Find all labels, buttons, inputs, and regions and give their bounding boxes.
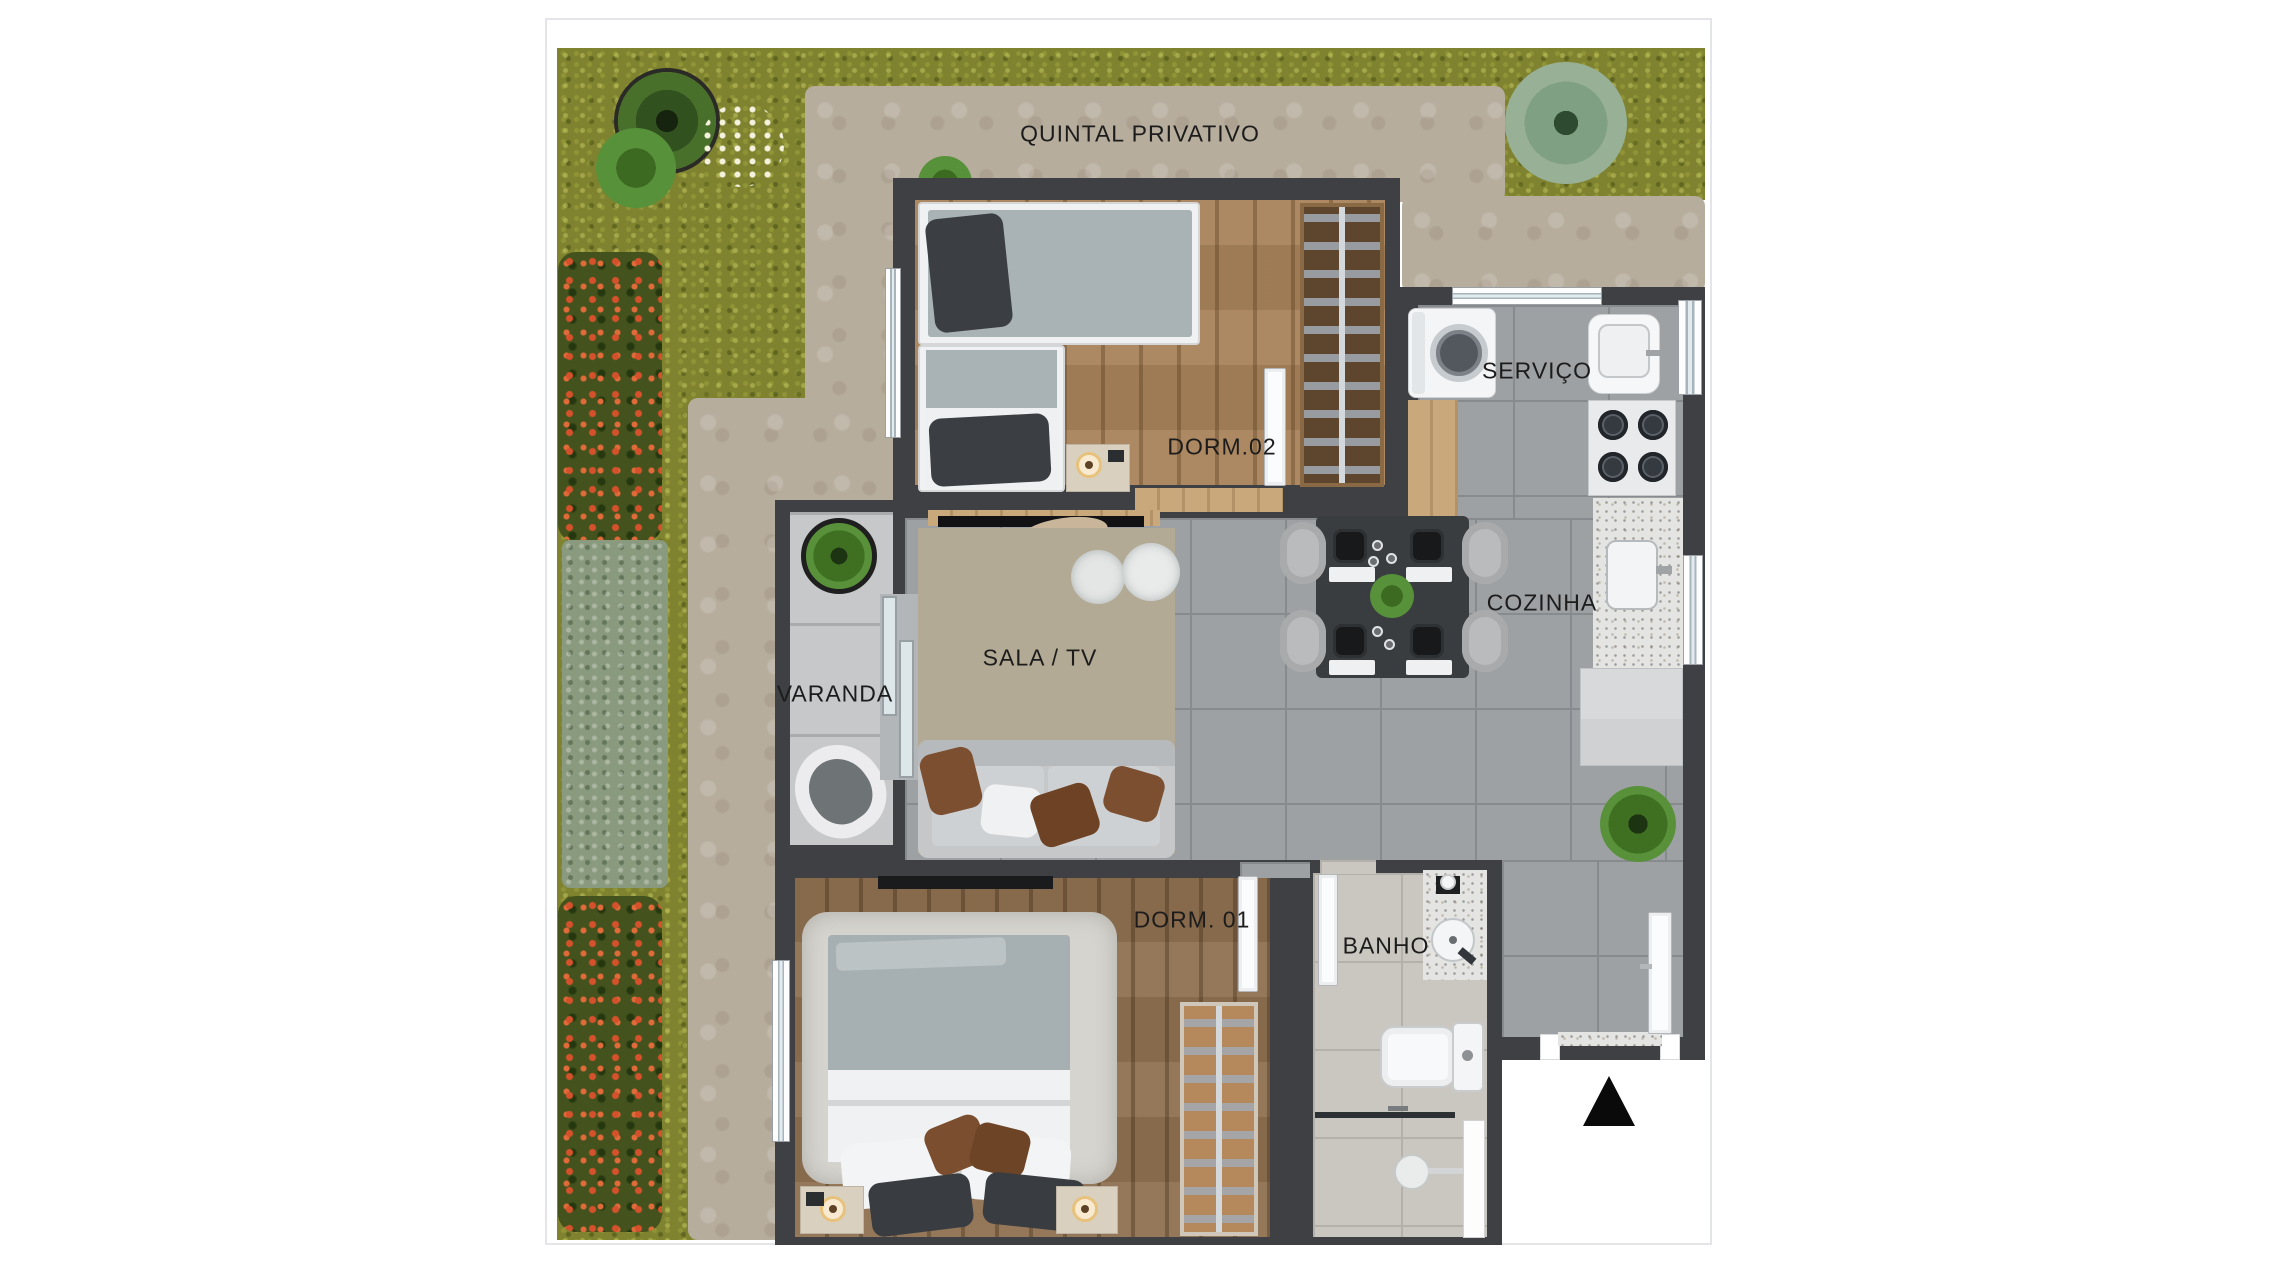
table-lamp-icon [1076, 452, 1102, 478]
dining-chair [1280, 522, 1326, 584]
washer-drum-icon [1430, 324, 1488, 382]
room-label-dorm02: DORM.02 [1167, 434, 1276, 461]
kitchen-counter-wood [1408, 400, 1458, 518]
dorm01-door [1238, 876, 1258, 992]
glass-icon [1386, 553, 1397, 564]
flower-bed-upper [558, 252, 662, 542]
floor-plan: QUINTAL PRIVATIVO DORM.02 [0, 0, 2280, 1283]
light-switch-icon [806, 1192, 824, 1206]
shower-glass-partition [1315, 1112, 1455, 1118]
yard-label: QUINTAL PRIVATIVO [1020, 121, 1260, 148]
room-label-dorm01: DORM. 01 [1134, 907, 1251, 934]
stone-path-top-right [1402, 196, 1705, 293]
duvet-fold [836, 937, 1007, 971]
entry-frame-stub [1540, 1034, 1560, 1060]
entry-triangle-marker [1583, 1076, 1635, 1126]
entry-threshold [1558, 1032, 1662, 1046]
kitchen-faucet-icon [1656, 566, 1672, 574]
white-flower-bush-icon [700, 103, 784, 187]
laundry-faucet-icon [1646, 350, 1660, 356]
varanda-plant-icon [801, 518, 877, 594]
burner-icon [1598, 410, 1628, 440]
burner-icon [1638, 452, 1668, 482]
entry-frame-stub [1660, 1034, 1680, 1060]
dorm02-window [885, 268, 901, 438]
banho-door-threshold [1320, 860, 1376, 874]
glass-icon [1372, 626, 1383, 637]
kitchen-floor-plant-icon [1600, 786, 1676, 862]
placemat-icon [1329, 660, 1375, 675]
dorm02-door [1264, 368, 1286, 486]
plate-icon [1333, 529, 1367, 563]
fridge [1580, 668, 1683, 766]
plate-icon [1410, 529, 1444, 563]
plate-icon [1410, 624, 1444, 658]
vanity-cup-icon [1440, 874, 1456, 890]
dining-chair [1462, 610, 1508, 672]
sage-tree-icon [1505, 62, 1627, 184]
banho-window [1463, 1120, 1485, 1238]
room-label-cozinha: COZINHA [1487, 590, 1598, 617]
glass-icon [1368, 556, 1379, 567]
kitchen-sink [1606, 540, 1658, 610]
laundry-sink-basin [1598, 324, 1650, 378]
dining-chair [1462, 522, 1508, 584]
wardrobe-open-dorm01 [1180, 1002, 1258, 1236]
pouf [1122, 543, 1180, 601]
room-label-servico: SERVIÇO [1482, 358, 1592, 385]
shower-head-icon [1394, 1154, 1430, 1190]
sliding-door-panel [899, 640, 914, 778]
washer-control-panel [1412, 312, 1425, 394]
grass-tuft-icon [596, 128, 676, 208]
wall-tv-icon [878, 876, 1053, 889]
table-centerpiece-plant-icon [1370, 574, 1414, 618]
entry-door-handle-icon [1640, 964, 1652, 969]
dorm02-door-threshold [1135, 488, 1283, 512]
table-lamp-icon [1072, 1196, 1098, 1222]
dark-pillow [924, 212, 1013, 334]
room-label-varanda: VARANDA [777, 681, 894, 708]
toilet-flush-icon [1462, 1050, 1473, 1061]
pouf [1071, 550, 1125, 604]
placemat-icon [1329, 567, 1375, 582]
glass-icon [1372, 540, 1383, 551]
hedge-bush [562, 540, 668, 888]
single-bed-left-blanket [926, 350, 1057, 412]
servico-window-right [1678, 300, 1702, 395]
banho-door [1318, 874, 1338, 986]
burner-icon [1598, 452, 1628, 482]
shower-glass-handle-icon [1388, 1106, 1408, 1111]
flower-bed-lower [558, 896, 662, 1232]
clock-radio-icon [1108, 450, 1124, 462]
glass-icon [1384, 639, 1395, 650]
room-label-banho: BANHO [1343, 933, 1430, 960]
dorm01-window [772, 960, 790, 1142]
entry-door [1648, 912, 1672, 1034]
plate-icon [1333, 624, 1367, 658]
dark-pillow [928, 413, 1051, 487]
burner-icon [1638, 410, 1668, 440]
sink-drain-icon [1449, 936, 1457, 944]
servico-window-top [1452, 287, 1602, 305]
sheet-band [828, 1100, 1070, 1106]
wardrobe-open-dorm02 [1300, 203, 1384, 487]
room-label-sala: SALA / TV [983, 645, 1098, 672]
dining-chair [1280, 610, 1326, 672]
placemat-icon [1406, 660, 1452, 675]
placemat-icon [1406, 567, 1452, 582]
kitchen-window [1683, 555, 1703, 665]
toilet-bowl [1380, 1026, 1456, 1088]
